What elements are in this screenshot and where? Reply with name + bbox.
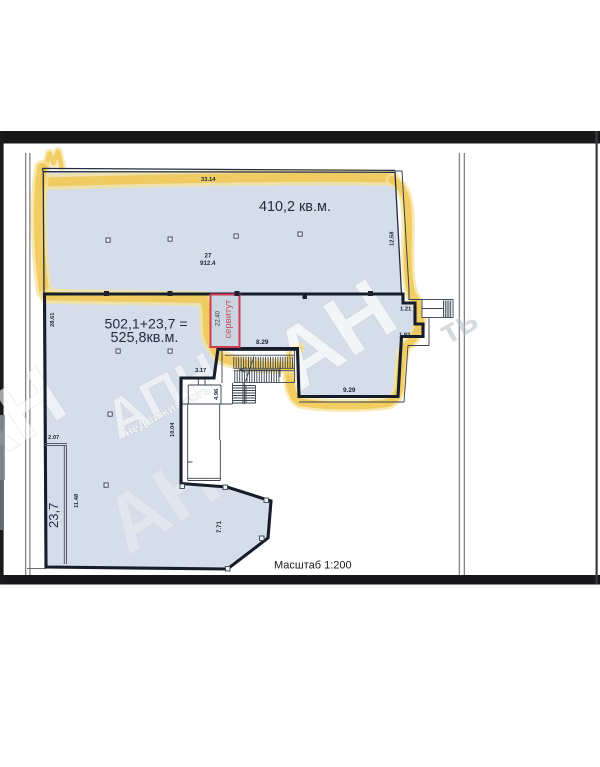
svg-text:27: 27 bbox=[205, 253, 212, 260]
svg-text:2.07: 2.07 bbox=[48, 435, 59, 441]
svg-text:7.71: 7.71 bbox=[216, 520, 223, 533]
svg-text:сервитут: сервитут bbox=[222, 299, 233, 338]
svg-text:33.14: 33.14 bbox=[201, 177, 216, 183]
svg-text:410,2 кв.м.: 410,2 кв.м. bbox=[259, 199, 331, 215]
svg-text:11.48: 11.48 bbox=[74, 493, 80, 508]
svg-text:10.04: 10.04 bbox=[170, 422, 176, 437]
svg-text:9.29: 9.29 bbox=[343, 387, 356, 394]
svg-text:1.21: 1.21 bbox=[400, 307, 412, 313]
svg-text:22.40: 22.40 bbox=[216, 310, 222, 326]
svg-text:Масштаб 1:200: Масштаб 1:200 bbox=[274, 560, 352, 572]
svg-text:8.29: 8.29 bbox=[256, 339, 269, 346]
svg-text:23,7: 23,7 bbox=[46, 503, 61, 528]
svg-text:1.92: 1.92 bbox=[399, 333, 410, 339]
svg-text:912.4: 912.4 bbox=[200, 260, 216, 267]
svg-text:525,8кв.м.: 525,8кв.м. bbox=[111, 330, 179, 346]
svg-text:3.17: 3.17 bbox=[195, 368, 206, 374]
svg-text:28.61: 28.61 bbox=[50, 312, 56, 327]
svg-text:12.58: 12.58 bbox=[390, 231, 396, 246]
svg-text:4.96: 4.96 bbox=[214, 388, 220, 400]
